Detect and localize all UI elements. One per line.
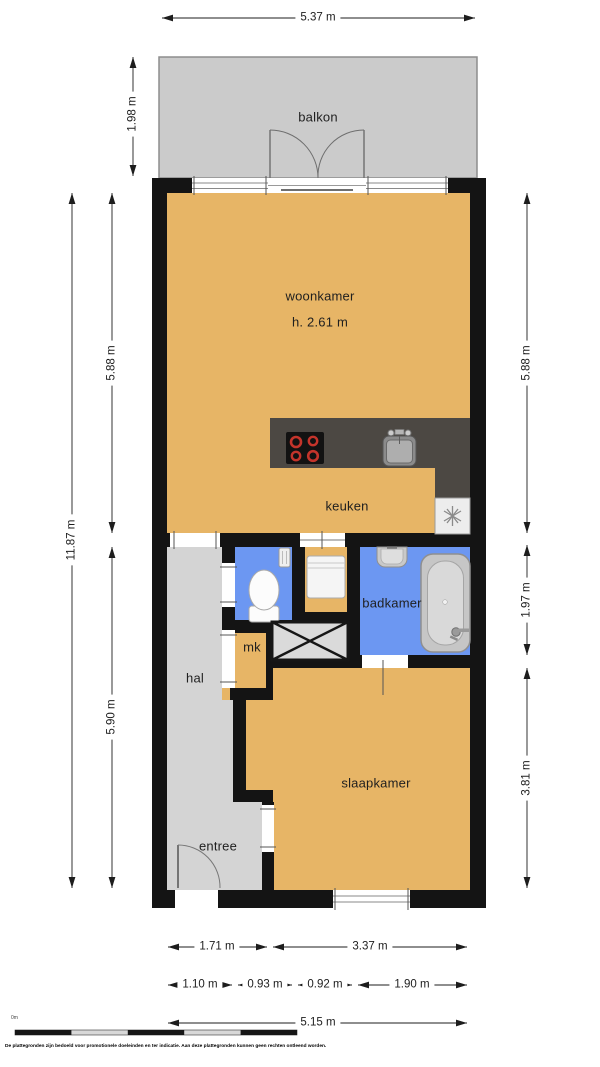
stove-icon [286, 432, 324, 464]
washer-icon [307, 556, 345, 598]
window-top-right-icon [366, 176, 448, 195]
room-label-keuken: keuken [325, 499, 368, 514]
mk-door-icon [220, 630, 237, 688]
dim-bottom-entree: 1.71 m [194, 941, 239, 954]
room-label-woonkamer: woonkamer [286, 289, 355, 304]
toilet-icon [249, 570, 279, 622]
floor-plan-canvas [0, 0, 600, 1067]
room-label-slaapkamer: slaapkamer [341, 776, 410, 791]
slaapkamer-door-icon [260, 805, 276, 852]
dim-balcony-depth: 1.98 m [127, 91, 140, 136]
window-top-left-icon [192, 176, 268, 195]
wc-door-icon [220, 563, 237, 607]
dim-balcony-width: 5.37 m [295, 12, 340, 25]
bathtub-icon [421, 554, 470, 652]
room-label-badkamer: badkamer [362, 596, 421, 611]
scale-bar-origin-label: 0m [11, 1015, 18, 1021]
room-label-entree: entree [199, 839, 237, 854]
dim-bottom-detail-3: 0.92 m [302, 979, 347, 992]
shaft-cross-icon [272, 622, 348, 660]
ceiling-height-label: h. 2.61 m [292, 315, 348, 330]
fridge-snowflake-icon [435, 498, 470, 534]
bathroom-sink-icon [377, 547, 407, 567]
window-slaapkamer-icon [333, 888, 410, 910]
dim-bottom-total: 5.15 m [295, 1017, 340, 1030]
dim-rear-depth-left: 5.90 m [106, 694, 119, 739]
floor-plan-page: balkon woonkamer h. 2.61 m keuken badkam… [0, 0, 600, 1067]
dim-bedroom-depth-right: 3.81 m [521, 755, 534, 800]
room-label-mk: mk [243, 640, 261, 655]
hal-opening-icon [170, 531, 220, 549]
balcony-door-threshold-icon [268, 178, 366, 193]
dim-bottom-slaapkamer: 3.37 m [347, 941, 392, 954]
dim-living-depth-left: 5.88 m [106, 340, 119, 385]
dim-bottom-detail-2: 0.93 m [242, 979, 287, 992]
dim-bottom-detail-4: 1.90 m [389, 979, 434, 992]
dim-living-depth-right: 5.88 m [521, 340, 534, 385]
dim-total-depth-left: 11.87 m [66, 515, 79, 566]
closet-doors-icon [300, 531, 345, 549]
room-label-balkon: balkon [298, 110, 338, 125]
dim-bottom-detail-1: 1.10 m [177, 979, 222, 992]
floor-woonkamer-keuken [167, 193, 470, 547]
scale-bar [15, 1030, 297, 1035]
room-label-hal: hal [186, 671, 204, 686]
radiator-icon [279, 548, 290, 567]
disclaimer-text: De plattegronden zijn bedoeld voor promo… [5, 1044, 595, 1049]
dim-bathroom-depth-right: 1.97 m [521, 577, 534, 622]
